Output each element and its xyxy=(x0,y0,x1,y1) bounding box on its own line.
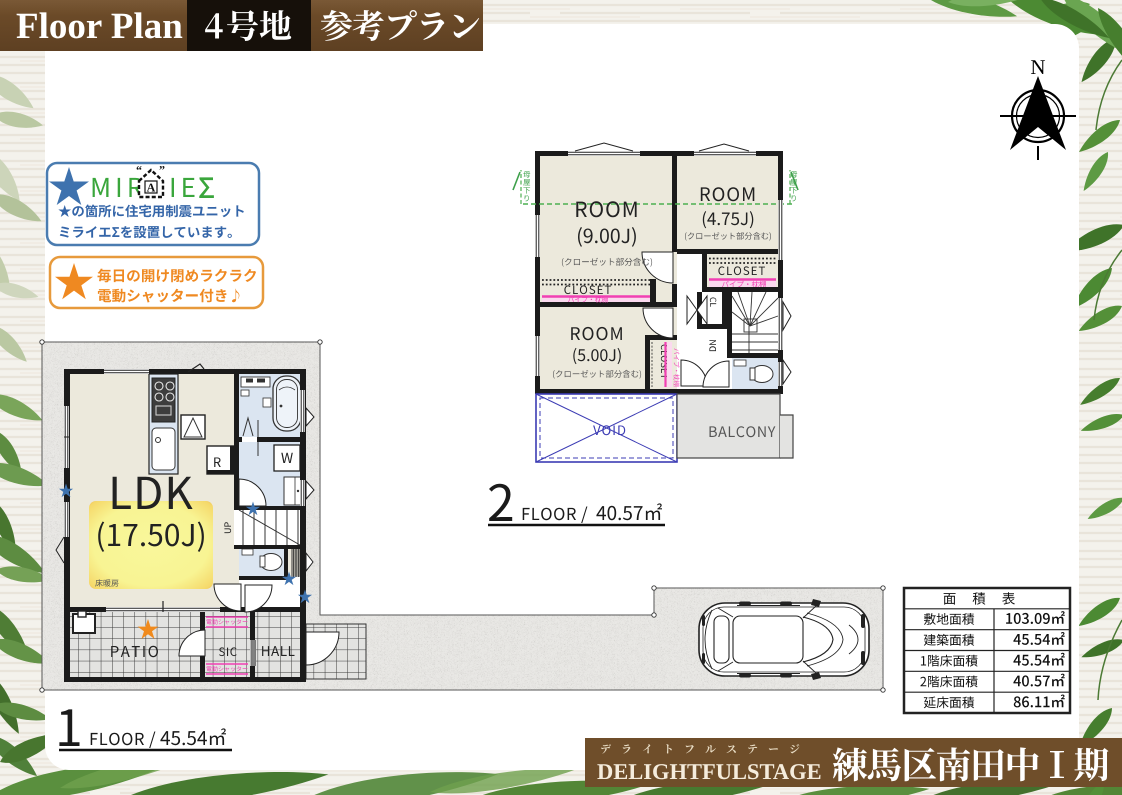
svg-text:Floor Plan: Floor Plan xyxy=(16,6,183,47)
svg-text:A: A xyxy=(147,181,156,195)
svg-text:N: N xyxy=(1030,55,1045,79)
svg-text:“: “ xyxy=(136,163,142,177)
svg-text:DELIGHTFULSTAGE: DELIGHTFULSTAGE xyxy=(597,759,822,784)
svg-text:”: ” xyxy=(159,163,165,177)
